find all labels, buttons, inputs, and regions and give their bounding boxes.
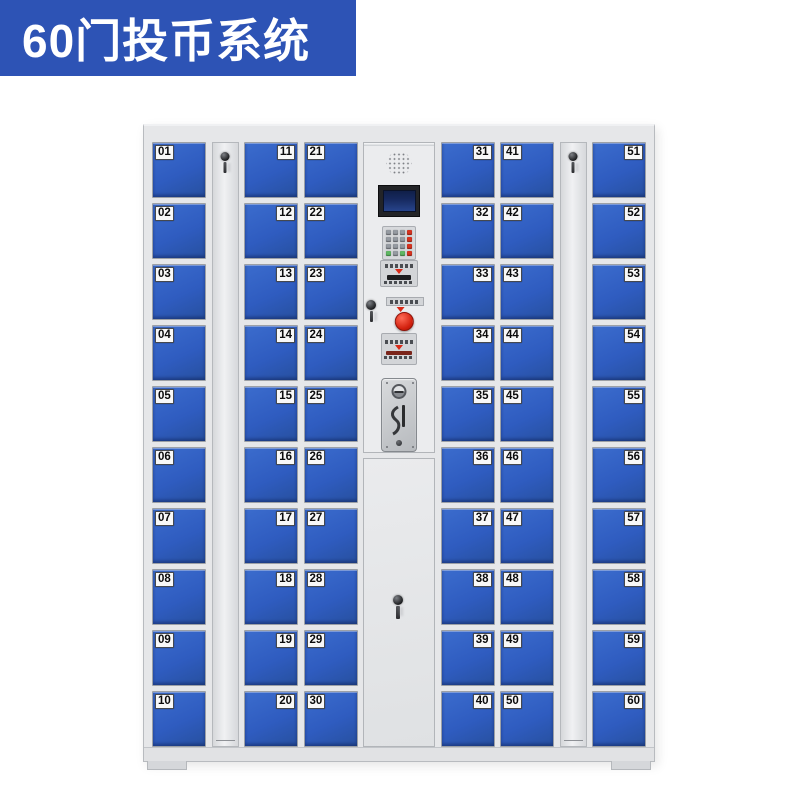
card-reader-label-text <box>385 264 413 268</box>
keypad-key-gray <box>393 230 398 235</box>
locker-door-number: 22 <box>307 206 326 221</box>
button-instruction-text <box>390 300 420 304</box>
locker-door-number: 19 <box>276 633 295 648</box>
locker-door: 37 <box>441 508 495 564</box>
cabinet-foot-left <box>147 761 187 770</box>
locker-door-number: 04 <box>155 328 174 343</box>
keypad-key-gray <box>393 251 398 256</box>
keypad-key-red <box>407 230 412 235</box>
locker-door-number: 43 <box>503 267 522 282</box>
locker-door: 42 <box>500 203 554 259</box>
coin-return-lever-icon <box>387 405 403 437</box>
locker-door-number: 59 <box>624 633 643 648</box>
keypad-key-gray <box>400 230 405 235</box>
right-lock-panel <box>560 142 587 747</box>
locker-door: 58 <box>592 569 646 625</box>
locker-door: 32 <box>441 203 495 259</box>
locker-door-number: 33 <box>473 267 492 282</box>
locker-door: 06 <box>152 447 206 503</box>
cabinet-base <box>144 747 654 761</box>
keypad-key-gray <box>386 244 391 249</box>
card-slot <box>387 275 411 280</box>
locker-door: 14 <box>244 325 298 381</box>
locker-door-number: 31 <box>473 145 492 160</box>
locker-door-number: 42 <box>503 206 522 221</box>
locker-door: 09 <box>152 630 206 686</box>
key-icon <box>370 311 373 322</box>
keypad-key-red <box>407 244 412 249</box>
locker-door-number: 52 <box>624 206 643 221</box>
locker-door: 01 <box>152 142 206 198</box>
locker-columns: 0102030405060708091011121314151617181920… <box>152 142 646 747</box>
locker-door-number: 55 <box>624 389 643 404</box>
locker-door-number: 27 <box>307 511 326 526</box>
instruction-sticker <box>381 333 417 365</box>
locker-door: 13 <box>244 264 298 320</box>
locker-door-number: 53 <box>624 267 643 282</box>
locker-door: 56 <box>592 447 646 503</box>
locker-door: 36 <box>441 447 495 503</box>
locker-door: 49 <box>500 630 554 686</box>
control-column <box>363 142 435 747</box>
locker-door-number: 56 <box>624 450 643 465</box>
locker-door: 34 <box>441 325 495 381</box>
control-panel <box>363 142 435 453</box>
locker-door-number: 11 <box>277 145 295 160</box>
locker-door-number: 44 <box>503 328 522 343</box>
locker-door: 44 <box>500 325 554 381</box>
locker-door: 47 <box>500 508 554 564</box>
coin-dial-icon <box>392 384 407 399</box>
locker-door-number: 02 <box>155 206 174 221</box>
locker-door: 10 <box>152 691 206 747</box>
locker-door: 50 <box>500 691 554 747</box>
key-icon <box>572 162 575 173</box>
door-column-41-50: 41424344454647484950 <box>500 142 554 747</box>
lock-cylinder-icon <box>221 152 230 161</box>
locker-door: 57 <box>592 508 646 564</box>
lower-door-lock-icon <box>393 595 403 619</box>
locker-door-number: 21 <box>307 145 326 160</box>
locker-door-number: 03 <box>155 267 174 282</box>
door-column-11-20: 11121314151617181920 <box>244 142 298 747</box>
instruction-title-text <box>385 340 413 344</box>
lcd-display-bezel <box>378 185 420 217</box>
locker-door-number: 24 <box>307 328 326 343</box>
locker-door-number: 36 <box>473 450 492 465</box>
locker-door: 54 <box>592 325 646 381</box>
locker-door: 21 <box>304 142 358 198</box>
locker-door: 11 <box>244 142 298 198</box>
key-icon <box>224 162 227 173</box>
keypad-key-gray <box>386 230 391 235</box>
locker-door-number: 45 <box>503 389 522 404</box>
locker-door-number: 50 <box>503 694 522 709</box>
master-lock-icon <box>221 152 230 173</box>
locker-door-number: 48 <box>503 572 522 587</box>
locker-door-number: 16 <box>276 450 295 465</box>
locker-door-number: 29 <box>307 633 326 648</box>
locker-door: 18 <box>244 569 298 625</box>
locker-door: 22 <box>304 203 358 259</box>
locker-door-number: 54 <box>624 328 643 343</box>
locker-door-number: 46 <box>503 450 522 465</box>
locker-door: 55 <box>592 386 646 442</box>
locker-door-number: 10 <box>155 694 174 709</box>
locker-door: 29 <box>304 630 358 686</box>
locker-door-number: 13 <box>276 267 295 282</box>
locker-door: 12 <box>244 203 298 259</box>
locker-door: 15 <box>244 386 298 442</box>
locker-door-number: 40 <box>473 694 492 709</box>
locker-door-number: 06 <box>155 450 174 465</box>
locker-door: 23 <box>304 264 358 320</box>
locker-door-number: 60 <box>624 694 643 709</box>
coin-acceptor <box>381 378 417 452</box>
instruction-caption-text <box>384 356 414 359</box>
locker-door: 19 <box>244 630 298 686</box>
keypad-key-red <box>407 251 412 256</box>
service-lock-icon <box>366 300 376 322</box>
locker-cabinet: 0102030405060708091011121314151617181920… <box>143 124 655 762</box>
locker-door-number: 32 <box>473 206 492 221</box>
locker-door-number: 41 <box>503 145 522 160</box>
locker-door-number: 14 <box>276 328 295 343</box>
key-icon <box>396 606 400 619</box>
lock-cylinder-icon <box>366 300 376 310</box>
keypad-key-gray <box>393 244 398 249</box>
locker-door: 51 <box>592 142 646 198</box>
locker-door-number: 58 <box>624 572 643 587</box>
lock-cylinder-icon <box>569 152 578 161</box>
locker-door-number: 28 <box>307 572 326 587</box>
emergency-open-button <box>395 312 414 331</box>
locker-door-number: 17 <box>276 511 295 526</box>
cabinet-foot-right <box>611 761 651 770</box>
door-column-21-30: 21222324252627282930 <box>304 142 358 747</box>
locker-door: 08 <box>152 569 206 625</box>
locker-door: 25 <box>304 386 358 442</box>
keypad-key-green <box>386 251 391 256</box>
keypad-key-gray <box>400 237 405 242</box>
locker-door-number: 37 <box>473 511 492 526</box>
locker-door: 02 <box>152 203 206 259</box>
locker-door: 59 <box>592 630 646 686</box>
locker-door: 52 <box>592 203 646 259</box>
locker-door-number: 26 <box>307 450 326 465</box>
button-instruction-sticker <box>386 297 424 306</box>
instruction-highlight-bar <box>386 351 412 355</box>
locker-door: 20 <box>244 691 298 747</box>
arrow-down-icon <box>395 345 403 350</box>
card-reader <box>380 260 418 287</box>
locker-door-number: 18 <box>276 572 295 587</box>
locker-door: 46 <box>500 447 554 503</box>
locker-door: 35 <box>441 386 495 442</box>
locker-door-number: 57 <box>624 511 643 526</box>
locker-door: 16 <box>244 447 298 503</box>
locker-door: 26 <box>304 447 358 503</box>
locker-door-number: 47 <box>503 511 522 526</box>
locker-door-number: 30 <box>307 694 326 709</box>
locker-door-number: 35 <box>473 389 492 404</box>
locker-door: 31 <box>441 142 495 198</box>
keypad-key-gray <box>400 244 405 249</box>
master-lock-icon <box>569 152 578 173</box>
locker-door-number: 20 <box>276 694 295 709</box>
locker-door: 04 <box>152 325 206 381</box>
coin-return-knob-icon <box>396 440 402 446</box>
locker-door-number: 09 <box>155 633 174 648</box>
service-lock-and-button <box>364 297 434 333</box>
lock-cylinder-icon <box>393 595 403 605</box>
left-lock-panel <box>212 142 239 747</box>
door-column-51-60: 51525354555657585960 <box>592 142 646 747</box>
locker-door: 17 <box>244 508 298 564</box>
locker-door-number: 15 <box>276 389 295 404</box>
locker-door: 28 <box>304 569 358 625</box>
locker-door: 30 <box>304 691 358 747</box>
locker-door: 38 <box>441 569 495 625</box>
door-column-01-10: 01020304050607080910 <box>152 142 206 747</box>
locker-door-number: 39 <box>473 633 492 648</box>
locker-door: 43 <box>500 264 554 320</box>
locker-door: 53 <box>592 264 646 320</box>
locker-door: 07 <box>152 508 206 564</box>
locker-door-number: 25 <box>307 389 326 404</box>
locker-door: 45 <box>500 386 554 442</box>
locker-door: 39 <box>441 630 495 686</box>
locker-door-number: 08 <box>155 572 174 587</box>
locker-door: 48 <box>500 569 554 625</box>
banner-title: 60门投币系统 <box>22 5 310 71</box>
arrow-down-icon <box>395 269 403 274</box>
keypad-key-gray <box>386 237 391 242</box>
locker-door: 40 <box>441 691 495 747</box>
locker-door: 60 <box>592 691 646 747</box>
locker-door-number: 51 <box>624 145 643 160</box>
locker-door-number: 34 <box>473 328 492 343</box>
lcd-display <box>383 190 416 212</box>
locker-door: 24 <box>304 325 358 381</box>
locker-door-number: 23 <box>307 267 326 282</box>
keypad-key-green <box>400 251 405 256</box>
keypad-key-red <box>407 237 412 242</box>
locker-door-number: 49 <box>503 633 522 648</box>
keypad <box>382 226 416 260</box>
control-lower-door <box>363 458 435 747</box>
locker-door-number: 38 <box>473 572 492 587</box>
locker-door: 27 <box>304 508 358 564</box>
locker-door-number: 05 <box>155 389 174 404</box>
locker-door: 41 <box>500 142 554 198</box>
door-column-31-40: 31323334353637383940 <box>441 142 495 747</box>
locker-door: 03 <box>152 264 206 320</box>
keypad-key-gray <box>393 237 398 242</box>
card-reader-caption-text <box>384 281 414 284</box>
locker-door-number: 12 <box>276 206 295 221</box>
locker-door-number: 01 <box>155 145 174 160</box>
banner: 60门投币系统 <box>0 0 356 76</box>
locker-door-number: 07 <box>155 511 174 526</box>
locker-door: 05 <box>152 386 206 442</box>
locker-door: 33 <box>441 264 495 320</box>
speaker-grille-icon <box>386 152 412 175</box>
